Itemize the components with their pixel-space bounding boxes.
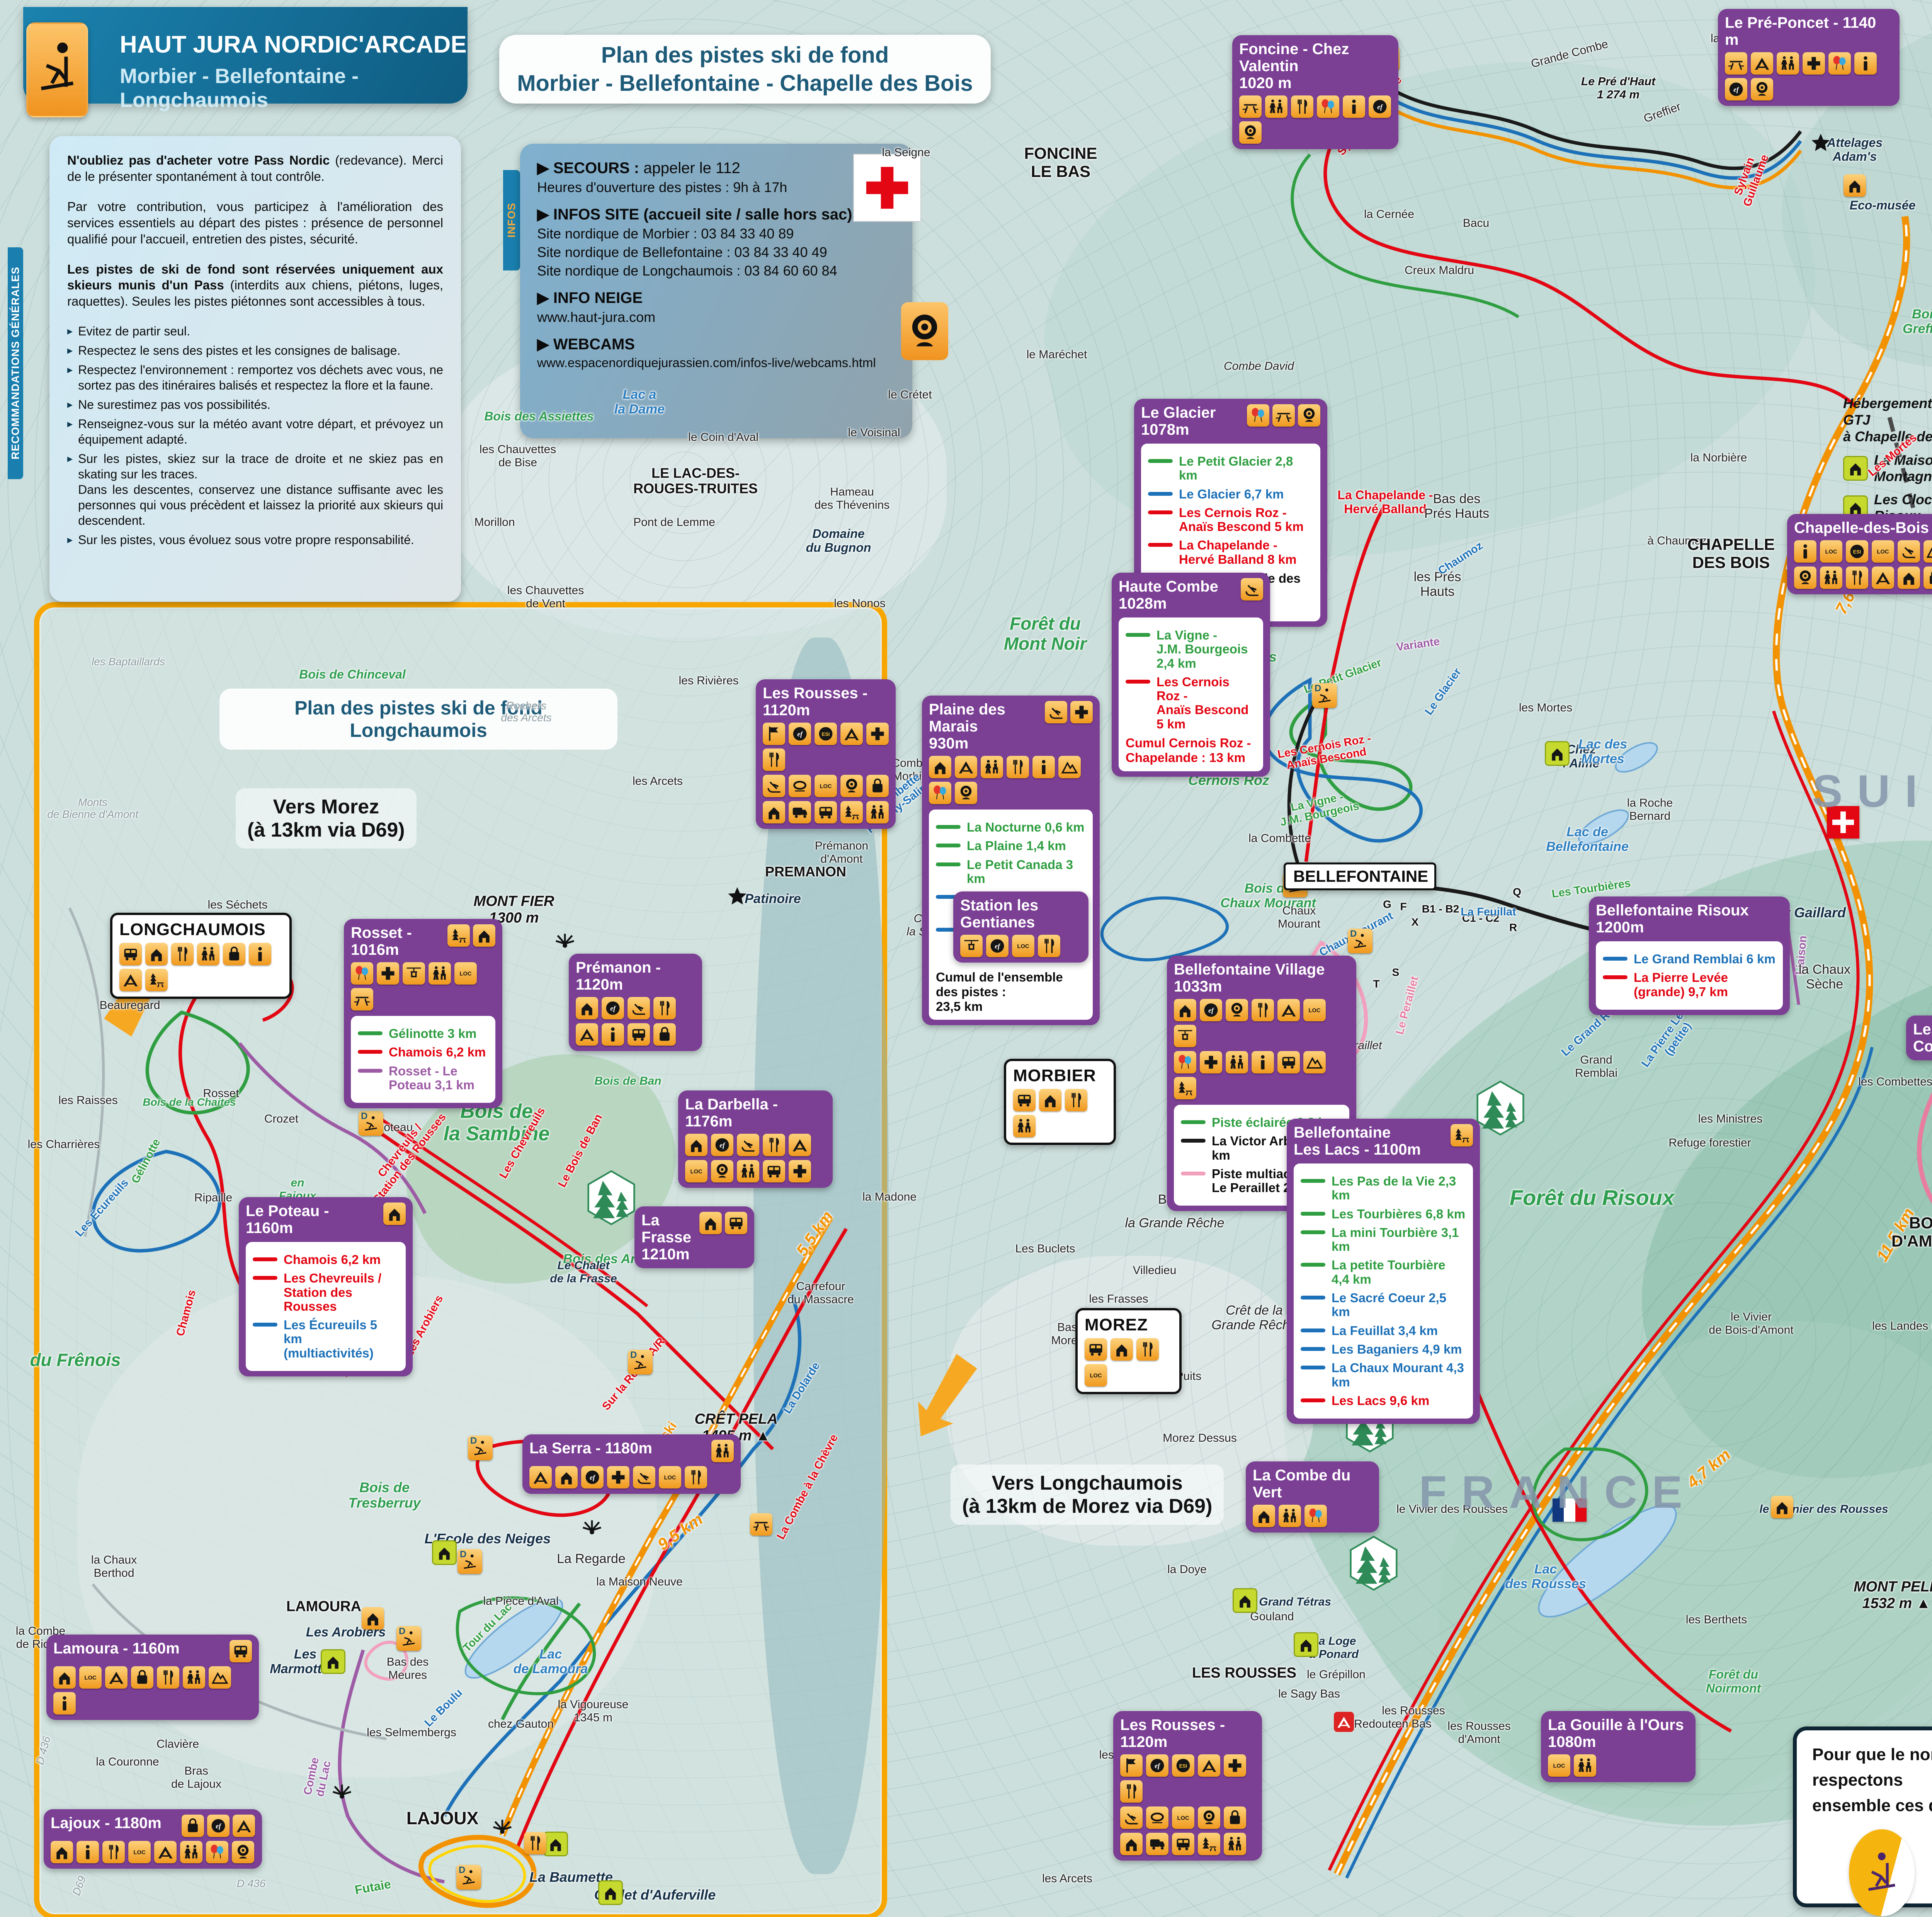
webcam-icon [1794, 566, 1816, 589]
ef-icon: ef [1369, 95, 1391, 118]
infos-site-title: ▶ INFOS SITE (accueil site / salle hors … [537, 206, 895, 223]
trail-name: Chamois 6,2 km [284, 1253, 381, 1267]
trail-start-marker-icon: D [457, 1549, 482, 1574]
house-icon [432, 1540, 457, 1565]
trail-start-marker-icon: D [1348, 929, 1372, 953]
picnic-icon [750, 1513, 772, 1536]
cross-icon [789, 1160, 811, 1182]
house-icon [383, 1203, 406, 1225]
ghouse-marker-icon [1545, 741, 1570, 766]
restaurant-icon [1291, 95, 1313, 118]
info-icon [1854, 52, 1877, 75]
info-icon [249, 943, 271, 965]
bus-icon [119, 943, 142, 965]
loc-icon: LOC [1820, 540, 1842, 563]
recommendations-panel: N'oubliez pas d'acheter votre Pass Nordi… [49, 136, 461, 602]
shelter-icon [1198, 1754, 1220, 1777]
trail-start-marker-icon: D [468, 1436, 493, 1460]
station-name: Plaine des Marais 930m [929, 701, 1040, 752]
secours-hours: Heures d'ouverture des pistes : 9h à 17h [537, 179, 895, 196]
wc-icon [183, 1666, 205, 1689]
star-marker-icon [727, 886, 748, 909]
trail-row: Les Cernois Roz - Anaïs Bescond 5 km [1126, 675, 1256, 731]
webcam-icon [1226, 999, 1248, 1021]
wc-icon [1226, 1051, 1248, 1073]
trail-color-dash [1301, 1212, 1325, 1216]
trail-name: Le Petit Canada 3 km [967, 858, 1086, 886]
vers-morez-label: Vers Morez(à 13km via D69) [236, 788, 417, 849]
webcams-title: ▶ WEBCAMS [537, 335, 895, 353]
trail-color-dash [1301, 1328, 1325, 1332]
trail-color-dash [1301, 1347, 1325, 1351]
nordic-skier-logo-icon [26, 22, 88, 117]
infoflag-icon [1120, 1754, 1143, 1777]
station-name: MOREZ [1085, 1316, 1148, 1334]
house-icon [699, 1212, 722, 1234]
cross-icon [1224, 1754, 1246, 1777]
house-icon [473, 924, 495, 947]
loc-icon: LOC [128, 1841, 151, 1863]
recommendation-paragraph: Par votre contribution, vous participez … [67, 199, 443, 247]
picnic-icon [351, 988, 373, 1010]
ef-icon: ef [711, 1134, 733, 1156]
shelter-icon [105, 1666, 128, 1689]
inset-title-line1: Plan des pistes ski de fond [294, 697, 543, 719]
first-aid-cross-icon [853, 154, 921, 222]
consignes-panel: Pour que le nordique reste un plaisir, r… [1793, 1726, 1932, 1907]
ghouse-marker-icon [598, 1880, 623, 1905]
loc-icon: LOC [79, 1666, 102, 1689]
sled-icon [628, 997, 650, 1019]
svg-text:LOC: LOC [1090, 1373, 1102, 1379]
skates-icon [789, 775, 811, 797]
ef-icon: ef [1725, 78, 1747, 100]
balloons-icon [206, 1841, 228, 1863]
trail-name: Le Petit Glacier 2,8 km [1179, 454, 1313, 483]
wc-icon [1820, 566, 1842, 589]
webcam-icon [232, 1841, 254, 1863]
station-name: Bellefontaine Les Lacs - 1100m [1294, 1124, 1421, 1158]
loc-icon: LOC [1303, 999, 1326, 1021]
trail-row: Les Cernois Roz - Anaïs Bescond 5 km [1148, 506, 1313, 534]
svg-text:LOC: LOC [1877, 549, 1889, 555]
trail-color-dash [1126, 680, 1150, 684]
picnic-icon [1272, 404, 1295, 427]
sun-marker-icon [581, 1518, 603, 1541]
wc-icon [1777, 52, 1799, 75]
trail-name: Les Écureuils 5 km (multiactivités) [284, 1318, 399, 1360]
station-name: La Frasse 1210m [641, 1212, 695, 1263]
mountain-icon [1058, 756, 1081, 778]
svg-text:ef: ef [216, 1822, 222, 1830]
shelter-icon [119, 969, 142, 991]
trail-start-marker-icon: D [456, 1865, 481, 1890]
station-name: Le Pré-Poncet - 1140 m [1725, 14, 1893, 48]
trail-color-dash [1301, 1366, 1325, 1369]
restaurant-icon [685, 1466, 707, 1488]
svg-text:LOC: LOC [1177, 1815, 1189, 1822]
sled-icon [1120, 1806, 1143, 1829]
house-icon [1898, 566, 1920, 589]
station-box-les-rousses-sud: Les Rousses - 1120mefESILOC [1113, 1711, 1262, 1861]
bus-icon [628, 1023, 650, 1046]
info-icon [1343, 95, 1365, 118]
trail-name: Les Tourbières 6,8 km [1332, 1207, 1465, 1221]
main-title-line1: Plan des pistes ski de fond [601, 42, 889, 68]
hebergement-item: La Maison du Montagnon [1843, 452, 1932, 485]
wc-icon [429, 962, 451, 985]
station-box-chapelle-des-bois: Chapelle-des-Bois - 1090 mLOCESILOC [1787, 514, 1932, 594]
cross-icon [607, 1466, 629, 1488]
bag-icon [131, 1666, 153, 1689]
trail-name: La Pierre Levée (grande) 9,7 km [1634, 971, 1728, 999]
station-name: La Serra - 1180m [529, 1440, 652, 1457]
trail-color-dash [253, 1323, 277, 1327]
recommendation-paragraph: N'oubliez pas d'acheter votre Pass Nordi… [67, 152, 443, 185]
mountain-icon [209, 1666, 231, 1689]
house-icon [145, 943, 168, 965]
skates-icon [1146, 1806, 1168, 1829]
bus-icon [1085, 1338, 1107, 1361]
trail-name: La Plaine 1,4 km [967, 839, 1066, 853]
wc-icon [180, 1841, 202, 1863]
station-name: Station les Gentianes [960, 897, 1082, 931]
trail-row: La Chapelande - Hervé Balland 8 km [1148, 538, 1313, 566]
svg-text:LOC: LOC [664, 1475, 676, 1481]
svg-text:ef: ef [995, 942, 1001, 950]
trail-name: La Nocturne 0,6 km [967, 820, 1084, 834]
webcams-url[interactable]: www.espacenordiquejurassien.com/infos-li… [537, 356, 895, 370]
svg-text:ef: ef [590, 1473, 596, 1481]
trail-row: La petite Tourbière 4,4 km [1301, 1258, 1466, 1286]
french-flag-icon [1553, 1499, 1587, 1522]
station-name: Le Poteau - 1160m [246, 1203, 379, 1237]
sled-icon [737, 1134, 759, 1156]
sled-icon [1241, 578, 1263, 600]
restaurant-icon [524, 1832, 546, 1854]
balloons-icon [351, 962, 373, 985]
skilift-icon [403, 962, 425, 985]
sun-marker-icon [554, 931, 576, 955]
info-neige-title: ▶ INFO NEIGE [537, 289, 895, 307]
svg-text:LOC: LOC [1309, 1008, 1321, 1014]
trail-color-dash [1301, 1230, 1325, 1234]
station-box-lajoux: Lajoux - 1180mefLOC [44, 1809, 262, 1869]
shelter-icon [840, 723, 863, 745]
station-name: Prémanon - 1120m [576, 959, 695, 993]
trail-color-dash [1148, 510, 1173, 514]
restaurant-icon [653, 997, 676, 1019]
balloons-icon [1174, 1051, 1196, 1073]
trail-name: Chamois 6,2 km [389, 1045, 486, 1059]
trail-name: La Vigne - J.M. Bourgeois 2,4 km [1156, 628, 1256, 670]
trail-color-dash [1301, 1179, 1325, 1183]
station-trail-list: Chamois 6,2 kmLes Chevreuils / Station d… [246, 1242, 406, 1371]
station-box-les-rousses-nord: Les Rousses - 1120mefESILOC [756, 679, 896, 829]
forest-icon [447, 924, 470, 947]
wc-icon [197, 943, 219, 965]
infos-site-line: Site nordique de Longchaumois : 03 84 60… [537, 263, 895, 279]
house-icon [598, 1880, 623, 1905]
restaurant-icon [1038, 935, 1060, 957]
ghouse-marker-icon [543, 1832, 568, 1856]
station-box-la-frasse: La Frasse 1210m [634, 1206, 754, 1268]
station-name: MORBIER [1013, 1067, 1096, 1085]
bag-icon [1923, 566, 1932, 589]
station-name: Les Combettes [1913, 1021, 1932, 1055]
trail-start-marker-icon: D [628, 1350, 653, 1374]
station-name: La Combe du Vert [1253, 1467, 1372, 1501]
trail-row: Les Baganiers 4,9 km [1301, 1342, 1466, 1356]
balloons-icon [1247, 404, 1269, 427]
secours-title: ▶ SECOURS : appeler le 112 [537, 159, 895, 177]
tree-marker-icon [1471, 1079, 1529, 1139]
picnicm-marker-icon [750, 1513, 772, 1536]
station-trail-list: Gélinotte 3 kmChamois 6,2 kmRosset - Le … [351, 1016, 495, 1103]
station-name: Bellefontaine Risoux 1200m [1596, 902, 1749, 936]
trail-color-dash [1301, 1398, 1325, 1402]
svg-text:LOC: LOC [134, 1850, 146, 1856]
webcam-icon [1198, 1806, 1220, 1829]
restaurant-icon [1136, 1338, 1159, 1361]
svg-text:ef: ef [719, 1141, 726, 1149]
info-icon [1252, 1051, 1274, 1073]
trail-row: La Pierre Levée (grande) 9,7 km [1603, 971, 1776, 999]
bag-icon [223, 943, 245, 965]
station-box-haute-combe: Haute Combe 1028mLa Vigne - J.M. Bourgeo… [1112, 573, 1270, 777]
house-icon [543, 1832, 568, 1856]
shelter-icon [955, 756, 977, 778]
restaurant-icon [1007, 756, 1029, 778]
recommendation-bullet: ▸Renseignez-vous sur la météo avant votr… [67, 416, 443, 447]
infos-site-line: Site nordique de Bellefontaine : 03 84 3… [537, 244, 895, 260]
loc-icon: LOC [685, 1160, 707, 1182]
station-box-la-gouille-a-lours: La Gouille à l'Ours 1080mLOC [1541, 1711, 1696, 1782]
loc-icon: LOC [1012, 935, 1034, 957]
svg-text:ESI: ESI [822, 731, 830, 737]
ef-icon: ef [1200, 999, 1222, 1021]
shelter-icon [529, 1466, 552, 1488]
ski-map-canvas[interactable]: HAUT JURA NORDIC'ARCADE Morbier - Bellef… [0, 0, 1932, 1917]
cross-icon [1803, 52, 1825, 75]
station-box-le-poteau: Le Poteau - 1160mChamois 6,2 kmLes Chevr… [239, 1197, 413, 1376]
trail-color-dash [358, 1050, 383, 1054]
restaurant-icon [1065, 1089, 1087, 1111]
trail-name: Les Cernois Roz - Anaïs Bescond 5 km [1156, 675, 1256, 731]
bus-icon [1277, 1051, 1300, 1073]
station-box-bellefontaine: BELLEFONTAINE [1284, 862, 1436, 890]
svg-text:ef: ef [797, 730, 803, 738]
station-name: Les Rousses - 1120m [1120, 1716, 1255, 1750]
trail-name: Les Lacs 9,6 km [1332, 1394, 1429, 1408]
trail-start-marker-icon: D [359, 1111, 383, 1136]
cross-icon [377, 962, 399, 985]
trail-row: La Feuillat 3,4 km [1301, 1324, 1466, 1338]
trail-color-dash [253, 1276, 277, 1280]
house-icon [1039, 1089, 1061, 1111]
restaurant-icon [171, 943, 194, 965]
recommendation-paragraph: Les pistes de ski de fond sont réservées… [67, 261, 443, 310]
house-icon [576, 997, 598, 1019]
restaurant-icon [763, 1134, 785, 1156]
station-box-foncine-chez-valentin: Foncine - Chez Valentin 1020 mef [1232, 35, 1398, 149]
trail-color-dash [936, 844, 961, 847]
sled-icon [763, 775, 785, 797]
recommendations-paragraphs: N'oubliez pas d'acheter votre Pass Nordi… [67, 152, 443, 310]
station-box-bellefontaine-risoux: Bellefontaine Risoux 1200mLe Grand Rembl… [1589, 896, 1790, 1015]
station-box-lamoura: Lamoura - 1160mLOC [46, 1635, 259, 1720]
webcam-icon [901, 302, 948, 360]
trail-color-dash [1181, 1172, 1206, 1175]
trail-color-dash [253, 1257, 277, 1261]
webcam-icon [1239, 121, 1262, 144]
trail-name: Le Sacré Coeur 2,5 km [1332, 1291, 1466, 1319]
trail-row: Les Pas de la Vie 2,3 km [1301, 1174, 1466, 1203]
trail-name: Les Baganiers 4,9 km [1332, 1342, 1462, 1356]
recommendations-vertical-tab: RECOMMANDATIONS GÉNÉRALES [8, 247, 23, 479]
trail-row: Les Écureuils 5 km (multiactivités) [253, 1318, 399, 1360]
mountain-icon [1303, 1051, 1326, 1073]
tree-marker-icon [1345, 1534, 1403, 1594]
house-icon [1771, 1496, 1793, 1518]
camper-icon [1146, 1833, 1168, 1855]
svg-text:LOC: LOC [1553, 1763, 1565, 1769]
infos-site-line: Site nordique de Morbier : 03 84 33 40 8… [537, 226, 895, 242]
sled-icon [633, 1466, 655, 1488]
trail-row: Le Glacier 6,7 km [1148, 487, 1313, 501]
trail-color-dash [358, 1031, 383, 1035]
trail-color-dash [358, 1069, 383, 1073]
svg-text:ESI: ESI [1853, 549, 1861, 555]
balloons-icon [1317, 95, 1339, 118]
esi-icon: ESI [1172, 1754, 1194, 1777]
esi-icon: ESI [815, 723, 837, 745]
ghouse-marker-icon [1294, 1632, 1318, 1657]
bus-icon [763, 1160, 785, 1182]
house-icon [362, 1607, 384, 1630]
station-name: Les Rousses - 1120m [763, 685, 889, 719]
trail-row: Le Grand Remblai 6 km [1603, 952, 1776, 966]
trail-row: Les Tourbières 6,8 km [1301, 1207, 1466, 1221]
trail-color-dash [1301, 1263, 1325, 1267]
recommendation-bullet: ▸Sur les pistes, skiez sur la trace de d… [67, 451, 443, 528]
picnic-icon [1239, 95, 1262, 118]
trail-name: La mini Tourbière 3,1 km [1332, 1226, 1466, 1254]
house-icon [1545, 741, 1570, 766]
forest-icon [1174, 1077, 1196, 1099]
info-neige-url[interactable]: www.haut-jura.com [537, 309, 895, 325]
station-box-les-combettes: Les Combettes [1906, 1015, 1932, 1060]
svg-text:ef: ef [1155, 1762, 1161, 1769]
loc-icon: LOC [815, 775, 837, 797]
station-name: La Gouille à l'Ours 1080m [1548, 1716, 1684, 1750]
skilift-icon [960, 935, 983, 957]
house-icon [51, 1841, 73, 1863]
trail-row: Rosset - Le Poteau 3,1 km [358, 1064, 488, 1092]
station-trail-list: Le Grand Remblai 6 kmLa Pierre Levée (gr… [1596, 941, 1783, 1010]
ohouse-marker-icon [1844, 174, 1866, 197]
svg-text:LOC: LOC [820, 784, 832, 790]
house-icon [1111, 1338, 1133, 1361]
ef-icon: ef [789, 723, 811, 745]
station-name: Bellefontaine Village 1033m [1174, 961, 1325, 995]
shelter-icon [154, 1841, 177, 1863]
infos-site-lines: Site nordique de Morbier : 03 84 33 40 8… [537, 226, 895, 279]
trail-row: Les Chevreuils / Station des Rousses [253, 1271, 399, 1313]
shelter-icon [789, 1134, 811, 1156]
trail-color-dash [1148, 492, 1173, 496]
station-box-la-serra: La Serra - 1180mefLOC [522, 1434, 741, 1494]
loc-icon: LOC [1872, 540, 1894, 563]
loc-icon: LOC [454, 962, 477, 985]
info-icon [1032, 756, 1055, 778]
trail-row: Les Lacs 9,6 km [1301, 1394, 1466, 1408]
shelter-icon [1751, 52, 1773, 75]
ghouse-marker-icon [321, 1649, 345, 1674]
consignes-title: Pour que le nordique reste un plaisir, r… [1812, 1742, 1932, 1818]
house-icon [1174, 999, 1196, 1021]
swiss-flag-icon [1827, 806, 1859, 839]
webcam-icon [955, 782, 977, 804]
balloons-icon [929, 782, 951, 804]
bag-icon [653, 1023, 676, 1046]
house-icon [1294, 1632, 1318, 1657]
station-box-plaine-des-marais: Plaine des Marais 930mLa Nocturne 0,6 km… [922, 696, 1100, 1025]
loc-icon: LOC [1548, 1754, 1570, 1777]
bus-icon [815, 801, 837, 823]
svg-text:ef: ef [1208, 1006, 1214, 1014]
station-box-station-les-gentianes: Station les GentianesefLOC [953, 891, 1088, 963]
wc-icon [981, 756, 1003, 778]
trail-cumul: Cumul Cernois Roz - Chapelande : 13 km [1126, 736, 1256, 765]
trail-row: La Vigne - J.M. Bourgeois 2,4 km [1126, 628, 1256, 670]
ef-icon: ef [602, 997, 624, 1019]
consigne-item: En skating, j'évite les traces de classi… [1835, 1829, 1928, 1917]
trail-name: Rosset - Le Poteau 3,1 km [389, 1064, 488, 1092]
house-icon [1844, 174, 1866, 197]
restaurant-icon [1846, 566, 1868, 589]
trail-name: Le Grand Remblai 6 km [1634, 952, 1776, 966]
trail-start-marker-icon: D [1312, 683, 1337, 708]
house-icon [321, 1649, 345, 1674]
trail-name: La Chapelande - Hervé Balland 8 km [1179, 538, 1296, 566]
balloons-icon [1828, 52, 1851, 75]
trail-row: La Plaine 1,4 km [936, 839, 1086, 853]
trail-row: Le Petit Canada 3 km [936, 858, 1086, 886]
station-box-la-combe-du-vert: La Combe du Vert [1246, 1461, 1379, 1533]
recommendation-bullet: ▸Ne surestimez pas vos possibilités. [67, 397, 443, 412]
station-trail-list: La Vigne - J.M. Bourgeois 2,4 kmLes Cern… [1119, 617, 1263, 771]
trail-name: La Chaux Mourant 4,3 km [1332, 1361, 1466, 1389]
trail-name: Les Pas de la Vie 2,3 km [1332, 1174, 1466, 1203]
sled-icon [1898, 540, 1920, 563]
redshelter-marker-icon [1334, 1712, 1354, 1732]
station-box-la-darbella: La Darbella - 1176mefLOC [678, 1090, 833, 1188]
station-name: Chapelle-des-Bois - 1090 m [1794, 519, 1932, 536]
shelter-icon [233, 1815, 255, 1837]
wc-icon [1265, 95, 1287, 118]
house-icon [929, 756, 951, 778]
trail-start-marker-icon: D [396, 1626, 421, 1651]
trail-name: Le Glacier 6,7 km [1179, 487, 1284, 501]
ohouse-marker-icon [1771, 1496, 1793, 1518]
trail-row: Chamois 6,2 km [358, 1045, 488, 1059]
house-icon [1233, 1588, 1257, 1613]
station-trail-list: Les Pas de la Vie 2,3 kmLes Tourbières 6… [1294, 1163, 1473, 1419]
trail-row: Chamois 6,2 km [253, 1253, 399, 1267]
webcam-icon [1298, 404, 1320, 427]
restaurant-icon [157, 1666, 179, 1689]
